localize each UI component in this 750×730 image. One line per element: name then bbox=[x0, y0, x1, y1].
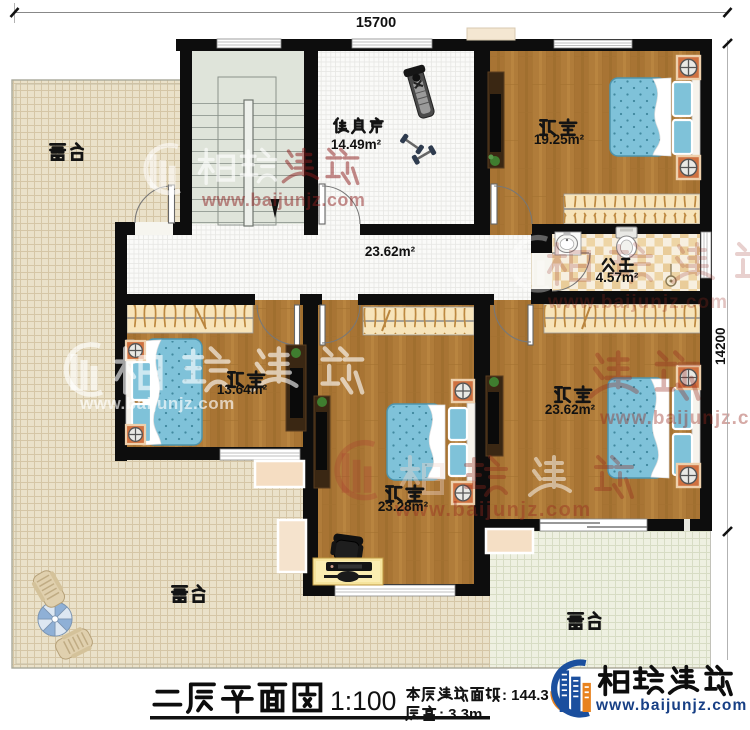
svg-text:14200: 14200 bbox=[713, 327, 728, 365]
svg-text:www.baijunjz.com: www.baijunjz.com bbox=[547, 292, 728, 313]
svg-text:: 144.3: : 144.3 bbox=[502, 687, 549, 704]
svg-text:: 3.3m: : 3.3m bbox=[439, 706, 482, 723]
svg-text:www.baijunjz.com: www.baijunjz.com bbox=[201, 190, 365, 210]
svg-text:15700: 15700 bbox=[356, 15, 396, 31]
svg-text:1:100: 1:100 bbox=[330, 686, 396, 716]
svg-text:14.49m²: 14.49m² bbox=[331, 137, 382, 152]
svg-text:www.baijunjz.com: www.baijunjz.com bbox=[595, 697, 747, 714]
svg-text:4.57m²: 4.57m² bbox=[596, 270, 639, 285]
svg-text:www.baijunjz.com: www.baijunjz.com bbox=[79, 394, 235, 413]
svg-text:23.62m²: 23.62m² bbox=[545, 402, 596, 417]
svg-text:23.62m²: 23.62m² bbox=[365, 244, 416, 259]
svg-text:13.64m²: 13.64m² bbox=[217, 382, 268, 397]
svg-text:23.28m²: 23.28m² bbox=[378, 499, 429, 514]
svg-text:19.25m²: 19.25m² bbox=[534, 132, 585, 147]
